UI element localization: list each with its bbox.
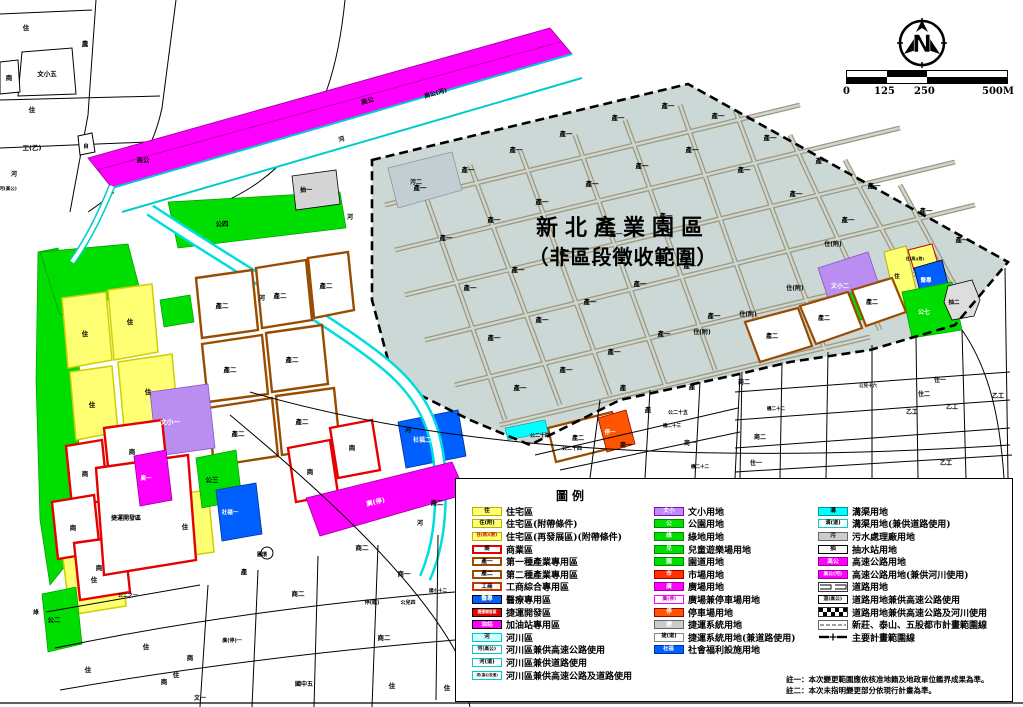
legend-swatch-code: 社福 — [664, 647, 674, 652]
map-label: 公四 — [216, 220, 230, 228]
map-label: 商二 — [754, 433, 766, 441]
legend-item-label: 住宅區 — [506, 505, 533, 518]
legend-item-label: 污水處理廠用地 — [852, 530, 915, 543]
map-label: 住一 — [934, 376, 946, 384]
legend-item-label: 河川區兼供高速公路使用 — [506, 643, 605, 656]
legend-swatch: 高公 — [818, 557, 848, 566]
map-label: 產 — [240, 567, 248, 576]
legend-item-label: 河川區兼供高速公路及道路使用 — [506, 669, 632, 682]
legend-swatch: 廣(停) — [654, 595, 684, 604]
map-label: 產二 — [223, 365, 238, 374]
map-label: 廣一 — [140, 474, 152, 482]
map-label: 抽二 — [948, 298, 960, 306]
map-label: 商 — [6, 73, 13, 82]
legend-swatch-code: 河(高公及道) — [476, 673, 497, 677]
map-label: 產二 — [817, 314, 830, 322]
legend-swatch-code: 市 — [666, 571, 672, 577]
map-label: 農 — [82, 39, 89, 48]
legend-item: 住(附)住宅區(附帶條件) — [472, 518, 662, 531]
map-label: 產一 — [583, 297, 598, 306]
map-label: 乙工 — [946, 404, 958, 411]
map-label: 商 — [82, 469, 89, 478]
legend-item-label: 綠地用地 — [688, 530, 724, 543]
legend-item: 捷(道)捷運系統用地(兼道路使用) — [654, 631, 819, 644]
map-label: 商 — [96, 563, 103, 572]
legend-item: 商商業區 — [472, 543, 662, 556]
legend-swatch-code: 捷(道) — [661, 635, 676, 640]
map-label: 住(附) — [824, 240, 842, 248]
map-label: 住二 — [918, 390, 930, 398]
map-label: 住 — [389, 681, 396, 690]
map-label: 機二十二 — [767, 405, 785, 412]
map-label: 產 — [688, 382, 696, 391]
legend-box: 圖例 住住宅區住(附)住宅區(附帶條件)住(再)(附)住宅區(再發展區)(附帶條… — [455, 478, 1013, 702]
legend-item: 河(高公及道)河川區兼供高速公路及道路使用 — [472, 669, 662, 682]
legend-swatch-code: 住 — [484, 508, 490, 514]
legend-swatch-code: 園 — [666, 559, 672, 565]
map-label: 住 — [29, 105, 36, 114]
legend-item: 主要計畫範圍線 — [818, 631, 1010, 644]
legend-swatch-code: 文小 — [663, 508, 674, 514]
map-label: 產二 — [231, 429, 246, 438]
legend-swatch: 公 — [654, 519, 684, 528]
legend-swatch: 住 — [472, 507, 502, 516]
legend-item-label: 停車場用地 — [688, 606, 733, 619]
legend-swatch: 污 — [818, 532, 848, 541]
map-label: 住 — [145, 387, 152, 396]
legend-item-label: 捷運系統用地 — [688, 618, 742, 631]
legend-swatch-code: 醫專 — [481, 597, 492, 603]
scale-bar-segment — [847, 77, 888, 83]
map-label: 文小一 — [159, 417, 180, 426]
scale-tick-label: 500M — [982, 86, 1014, 97]
map-label: 產一 — [661, 101, 676, 110]
map-label: 產一 — [711, 111, 726, 120]
legend-item-label: 高速公路用地(兼供河川使用) — [852, 568, 969, 581]
map-label: 公兒四 — [400, 599, 415, 606]
map-label: 圓環 — [257, 551, 268, 558]
legend-item-label: 市場用地 — [688, 568, 724, 581]
legend-swatch: 兒 — [654, 545, 684, 554]
legend-item-label: 道路用地兼供高速公路使用 — [852, 593, 960, 606]
map-label: 公兒十六 — [859, 382, 877, 389]
map-label: 抽一 — [300, 186, 312, 194]
map-label: 停一 — [604, 428, 616, 436]
map-label: 公六 — [832, 306, 844, 314]
legend-swatch — [818, 633, 848, 642]
map-title: 新北產業園區 （非區段徵收範圍） — [498, 214, 748, 271]
map-label: 產一 — [461, 165, 476, 174]
legend-swatch: 商 — [472, 545, 502, 554]
legend-swatch: 文小 — [654, 507, 684, 516]
legend-item: 園園道用地 — [654, 555, 819, 568]
legend-item-label: 主要計畫範圍線 — [852, 631, 915, 644]
map-label: 產二 — [765, 332, 778, 340]
map-label: 產一 — [559, 365, 574, 374]
legend-swatch: 道(高公) — [818, 595, 848, 604]
map-label: 產二 — [319, 281, 334, 290]
legend-swatch-code: 綠 — [666, 534, 672, 540]
legend-swatch-code: 公 — [666, 521, 672, 527]
legend-swatch-code: 河(高公) — [478, 647, 497, 652]
map-label: 公七 — [918, 308, 930, 316]
legend-item: 綠綠地用地 — [654, 530, 819, 543]
legend-item-label: 文小用地 — [688, 505, 724, 518]
map-label: 產一 — [611, 113, 626, 122]
map-label: 產一 — [657, 329, 672, 338]
legend-swatch-code: 捷運開發區 — [478, 610, 497, 614]
map-label: 停(臨) — [365, 599, 380, 606]
map-label: 公二十四 — [530, 432, 550, 439]
map-label: 機二十三 — [663, 422, 681, 429]
legend-item-label: 兒童遊樂場用地 — [688, 543, 751, 556]
map-label: 產一 — [919, 206, 934, 215]
map-label: 住 — [23, 23, 30, 32]
map-label: 產一 — [487, 333, 502, 342]
map-label: 住 — [143, 642, 150, 651]
north-arrow: N — [890, 16, 954, 72]
legend-item: 公公園用地 — [654, 518, 819, 531]
legend-item: 兒兒童遊樂場用地 — [654, 543, 819, 556]
map-label: 國中五 — [295, 680, 313, 688]
map-label: 產一 — [635, 161, 650, 170]
legend-item-label: 河川區 — [506, 631, 533, 644]
map-label: 河(高公) — [0, 185, 17, 192]
map-label: 商 — [187, 653, 194, 662]
legend-item: 社福社會福利設施用地 — [654, 644, 819, 657]
map-label: 公二 — [48, 616, 62, 624]
legend-item: 道(高公)道路用地兼供高速公路使用 — [818, 593, 1010, 606]
legend-item: 道路用地 — [818, 581, 1010, 594]
map-label: 河 — [347, 213, 353, 221]
map-label: 住 — [85, 665, 92, 674]
map-label: 河 — [11, 170, 17, 178]
map-label: 社福一 — [221, 508, 239, 516]
legend-item: 捷捷運系統用地 — [654, 618, 819, 631]
map-label: 醫專 — [920, 276, 932, 284]
legend-item: 廣廣場用地 — [654, 581, 819, 594]
map-label: 高公 — [137, 155, 151, 164]
legend-item: 道路用地兼供高速公路及河川使用 — [818, 606, 1010, 619]
map-label: 自 — [83, 142, 89, 150]
map-label: 商二 — [356, 543, 370, 552]
map-label: 住 — [82, 329, 89, 338]
map-label: 乙工 — [906, 409, 918, 416]
map-label: 產二 — [295, 417, 310, 426]
legend-item: 河(高公)河川區兼供高速公路使用 — [472, 644, 662, 657]
legend-item: 溝溝渠用地 — [818, 505, 1010, 518]
map-label: 住(附) — [786, 284, 804, 292]
map-label: 住(再)(附) — [906, 256, 925, 261]
map-label: 乙工 — [992, 393, 1004, 400]
legend-swatch: 高公(河) — [818, 570, 848, 579]
map-label: 住 — [894, 272, 900, 280]
legend-column-1: 住住宅區住(附)住宅區(附帶條件)住(再)(附)住宅區(再發展區)(附帶條件)商… — [472, 505, 662, 681]
legend-column-3: 溝溝渠用地溝(道)溝渠用地(兼供道路使用)污污水處理廠用地抽抽水站用地高公高速公… — [818, 505, 1010, 644]
legend-swatch: 河(道) — [472, 658, 502, 667]
legend-swatch-code: 住(附) — [479, 521, 494, 526]
legend-swatch: 抽 — [818, 545, 848, 554]
legend-item-label: 新莊、泰山、五股都市計畫範圍線 — [852, 618, 987, 631]
scale-bar-segments — [846, 70, 1008, 84]
legend-swatch — [818, 620, 848, 629]
map-notes: 註一：本次變更範圍應依核准地籍及地政單位鑑界成果為準。註二：本次未指明變更部分依… — [786, 675, 989, 696]
legend-swatch-code: 溝(道) — [825, 521, 840, 526]
map-label: 商二 — [378, 633, 392, 642]
map-label: 文小五 — [36, 69, 57, 78]
map-label: 商二 — [738, 378, 750, 386]
legend-swatch: 住(附) — [472, 519, 502, 528]
legend-item: 產二第二種產業專用區 — [472, 568, 662, 581]
legend-item: 產一第一種產業專用區 — [472, 555, 662, 568]
legend-swatch-code: 溝 — [830, 508, 836, 514]
map-note-line: 註二：本次未指明變更部分依現行計畫為準。 — [786, 686, 989, 697]
map-label: 住一 — [750, 459, 762, 467]
legend-swatch: 醫專 — [472, 595, 502, 604]
legend-swatch-code: 捷 — [666, 622, 672, 628]
legend-item: 河河川區 — [472, 631, 662, 644]
legend-swatch: 市 — [654, 570, 684, 579]
map-label: 商二 — [292, 589, 306, 598]
legend-swatch-code: 廣 — [666, 584, 672, 590]
legend-item-label: 園道用地 — [688, 555, 724, 568]
map-label: 文一 — [193, 694, 206, 702]
legend-swatch: 工商 — [472, 582, 502, 591]
map-label: 公二十四 — [562, 445, 582, 452]
legend-swatch-code: 兒 — [666, 546, 672, 552]
legend-swatch-code: 停 — [666, 609, 672, 615]
map-label: 產 — [619, 383, 627, 392]
map-label: 住(附) — [693, 328, 711, 336]
map-label: 產 — [644, 405, 652, 414]
legend-item: 住住宅區 — [472, 505, 662, 518]
map-label: 捷運開發區 — [111, 514, 141, 522]
scale-bar: 0125250500M — [846, 70, 1010, 100]
legend-swatch: 河(高公及道) — [472, 671, 502, 680]
legend-item: 醫專醫療專用區 — [472, 593, 662, 606]
map-label: 產一 — [707, 311, 722, 320]
map-label: 乙工 — [940, 460, 952, 467]
legend-item-label: 廣場兼停車場用地 — [688, 593, 760, 606]
legend-swatch-code: 高公(河) — [824, 572, 843, 577]
legend-swatch: 河 — [472, 633, 502, 642]
legend-item: 文小文小用地 — [654, 505, 819, 518]
legend-item-label: 工商綜合專用區 — [506, 580, 569, 593]
map-label: 河 — [417, 519, 423, 527]
map-label: 商一 — [620, 441, 632, 449]
map-label: 商 — [349, 443, 356, 452]
map-label: 商一 — [684, 439, 696, 447]
map-title-line1: 新北產業園區 — [498, 214, 748, 244]
legend-swatch: 停 — [654, 608, 684, 617]
legend-item-label: 捷運開發區 — [506, 606, 551, 619]
legend-item-label: 第二種產業專用區 — [506, 568, 578, 581]
map-label: 住 — [89, 400, 96, 409]
legend-item: 停停車場用地 — [654, 606, 819, 619]
map-label: 產一 — [535, 315, 550, 324]
legend-swatch — [818, 582, 848, 591]
legend-item-label: 溝渠用地 — [852, 505, 888, 518]
legend-swatch: 溝(道) — [818, 519, 848, 528]
map-label: 綠 — [33, 608, 39, 616]
legend-swatch-code: 產一 — [481, 559, 492, 565]
legend-item: 高公高速公路用地 — [818, 555, 1010, 568]
legend-swatch-code: 高公 — [827, 559, 838, 565]
legend-item: 市市場用地 — [654, 568, 819, 581]
legend-swatch-code: 住(再)(附) — [477, 534, 498, 538]
legend-item-label: 住宅區(附帶條件) — [506, 517, 578, 530]
legend-swatch: 捷 — [654, 620, 684, 629]
map-label: 商 — [161, 677, 168, 686]
legend-swatch-code: 產二 — [481, 571, 492, 577]
map-label: 產一 — [867, 181, 882, 190]
map-label: 河 — [259, 294, 265, 302]
zoning-map-page: 住農文小五商住工(乙)自高公河河(高公)高公高公(河)河河抽一污二公四河河河產一… — [0, 0, 1023, 707]
map-label: 機二十二 — [691, 463, 709, 470]
legend-swatch: 園 — [654, 557, 684, 566]
scale-bar-segment — [927, 77, 1008, 83]
legend-swatch: 產二 — [472, 570, 502, 579]
map-note-line: 註一：本次變更範圍應依核准地籍及地政單位鑑界成果為準。 — [786, 675, 989, 686]
map-label: 廣(停)一 — [221, 637, 242, 644]
map-label: 商一 — [398, 569, 412, 578]
map-label: 產二 — [865, 298, 878, 306]
legend-item-label: 住宅區(再發展區)(附帶條件) — [506, 530, 622, 543]
legend-swatch-code: 抽 — [830, 546, 836, 552]
legend-item-label: 高速公路用地 — [852, 555, 906, 568]
legend-item-label: 商業區 — [506, 543, 533, 556]
map-label: 產二 — [215, 301, 230, 310]
map-label: 產一 — [841, 215, 856, 224]
map-label: 商 — [307, 467, 314, 476]
legend-item: 污污水處理廠用地 — [818, 530, 1010, 543]
legend-item: 工商工商綜合專用區 — [472, 581, 662, 594]
legend-item-label: 社會福利設施用地 — [688, 643, 760, 656]
map-label: 產一 — [815, 156, 830, 165]
legend-item: 廣(停)廣場兼停車場用地 — [654, 593, 819, 606]
legend-swatch: 廣 — [654, 582, 684, 591]
map-label: 住 — [444, 683, 451, 692]
map-label: 公三 — [206, 476, 220, 484]
legend-item-label: 道路用地兼供高速公路及河川使用 — [852, 606, 987, 619]
legend-item-label: 抽水站用地 — [852, 543, 897, 556]
map-label: 產一 — [763, 133, 778, 142]
legend-item-label: 道路用地 — [852, 580, 888, 593]
legend-item: 高公(河)高速公路用地(兼供河川使用) — [818, 568, 1010, 581]
map-label: 文小二 — [830, 282, 849, 290]
legend-item-label: 第一種產業專用區 — [506, 555, 578, 568]
legend-item-label: 加油站專用區 — [506, 618, 560, 631]
map-label: 產二 — [285, 355, 300, 364]
legend-item-label: 溝渠用地(兼供道路使用) — [852, 517, 951, 530]
map-label: 產一 — [463, 283, 478, 292]
map-label: 商二 — [431, 498, 445, 507]
map-label: 產一 — [585, 179, 600, 188]
map-label: 商 — [70, 523, 77, 532]
legend-item-label: 公園用地 — [688, 517, 724, 530]
legend-swatch: 捷運開發區 — [472, 608, 502, 617]
legend-swatch: 社福 — [654, 645, 684, 654]
legend-item: 油站加油站專用區 — [472, 618, 662, 631]
legend-item: 新莊、泰山、五股都市計畫範圍線 — [818, 618, 1010, 631]
north-letter: N — [912, 30, 932, 58]
map-label: 產一 — [559, 129, 574, 138]
map-label: 住 — [182, 522, 189, 531]
map-label: 工(乙) — [23, 144, 42, 152]
legend-item: 抽抽水站用地 — [818, 543, 1010, 556]
legend-item: 捷運開發區捷運開發區 — [472, 606, 662, 619]
map-label: 產一 — [535, 197, 550, 206]
map-label: 產一 — [413, 183, 428, 192]
map-label: 產一 — [633, 279, 648, 288]
map-label: 住(附) — [739, 310, 757, 318]
legend-swatch: 產一 — [472, 557, 502, 566]
legend-swatch: 綠 — [654, 532, 684, 541]
legend-swatch-code: 油站 — [481, 622, 492, 628]
map-label: 產一 — [737, 165, 752, 174]
legend-title: 圖例 — [556, 487, 588, 504]
legend-item-label: 捷運系統用地(兼道路使用) — [688, 631, 796, 644]
map-label: 產一 — [513, 383, 528, 392]
legend-swatch-code: 工商 — [481, 584, 492, 590]
map-label: 住 — [91, 575, 98, 584]
map-label: 社福二 — [412, 436, 431, 444]
map-label: 產一 — [439, 233, 454, 242]
legend-swatch-code: 污 — [830, 534, 836, 540]
map-label: 產一 — [955, 235, 970, 244]
legend-item-label: 廣場用地 — [688, 580, 724, 593]
map-label: 公二之一 — [118, 592, 138, 599]
scale-tick-label: 0 — [843, 86, 850, 97]
scale-tick-label: 250 — [914, 86, 935, 97]
legend-column-2: 文小文小用地公公園用地綠綠地用地兒兒童遊樂場用地園園道用地市市場用地廣廣場用地廣… — [654, 505, 819, 656]
map-label: 住 — [173, 670, 180, 679]
legend-item-label: 醫療專用區 — [506, 593, 551, 606]
legend-swatch: 溝 — [818, 507, 848, 516]
map-label: 產一 — [607, 347, 622, 356]
map-label: 產二 — [571, 434, 584, 442]
scale-bar-segment — [887, 77, 928, 83]
legend-swatch-code: 商 — [484, 546, 490, 552]
map-label: 公二十五 — [668, 409, 688, 416]
legend-swatch-code: 河 — [484, 634, 490, 640]
map-label: 國小十二 — [429, 587, 447, 594]
legend-item-label: 河川區兼供道路使用 — [506, 656, 587, 669]
map-label: 商 — [129, 447, 136, 456]
legend-swatch: 住(再)(附) — [472, 532, 502, 541]
legend-swatch: 油站 — [472, 620, 502, 629]
legend-swatch — [818, 608, 848, 617]
legend-item: 住(再)(附)住宅區(再發展區)(附帶條件) — [472, 530, 662, 543]
map-label: 產一 — [789, 189, 804, 198]
legend-swatch-code: 廣(停) — [662, 597, 676, 602]
map-title-line2: （非區段徵收範圍） — [498, 244, 748, 271]
map-label: 產一 — [685, 145, 700, 154]
legend-swatch-code: 河(道) — [479, 660, 494, 665]
legend-swatch-code: 道(高公) — [824, 597, 843, 602]
legend-item: 河(道)河川區兼供道路使用 — [472, 656, 662, 669]
map-label: 河 — [405, 426, 411, 434]
legend-item: 溝(道)溝渠用地(兼供道路使用) — [818, 518, 1010, 531]
legend-swatch: 河(高公) — [472, 645, 502, 654]
map-label: 產一 — [509, 145, 524, 154]
map-label: 產二 — [273, 291, 288, 300]
scale-tick-label: 125 — [874, 86, 895, 97]
legend-swatch: 捷(道) — [654, 633, 684, 642]
map-label: 住 — [127, 317, 134, 326]
